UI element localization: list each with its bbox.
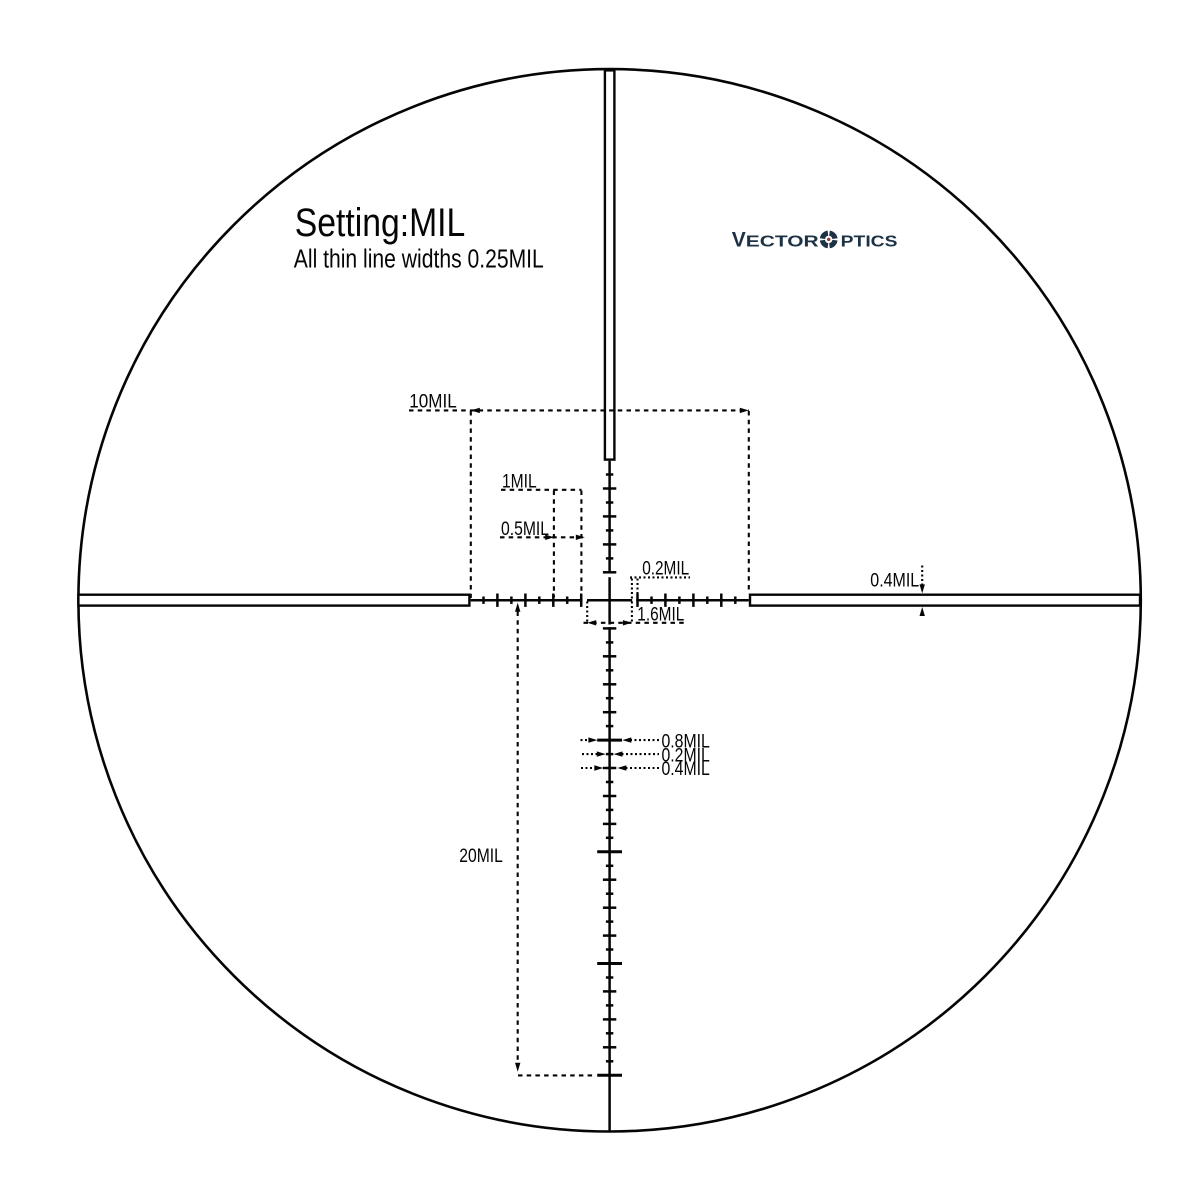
svg-text:10MIL: 10MIL: [409, 392, 456, 413]
svg-text:ECTOR: ECTOR: [746, 234, 819, 251]
svg-text:0.4MIL: 0.4MIL: [662, 759, 710, 780]
svg-text:0.4MIL: 0.4MIL: [870, 570, 919, 591]
svg-text:Setting:MIL: Setting:MIL: [295, 201, 466, 245]
svg-text:20MIL: 20MIL: [459, 846, 503, 867]
svg-text:1.6MIL: 1.6MIL: [637, 604, 684, 625]
svg-text:PTICS: PTICS: [841, 234, 898, 251]
svg-text:All thin line widths 0.25MIL: All thin line widths 0.25MIL: [294, 243, 544, 273]
svg-text:V: V: [732, 229, 746, 252]
svg-text:0.5MIL: 0.5MIL: [501, 519, 549, 540]
